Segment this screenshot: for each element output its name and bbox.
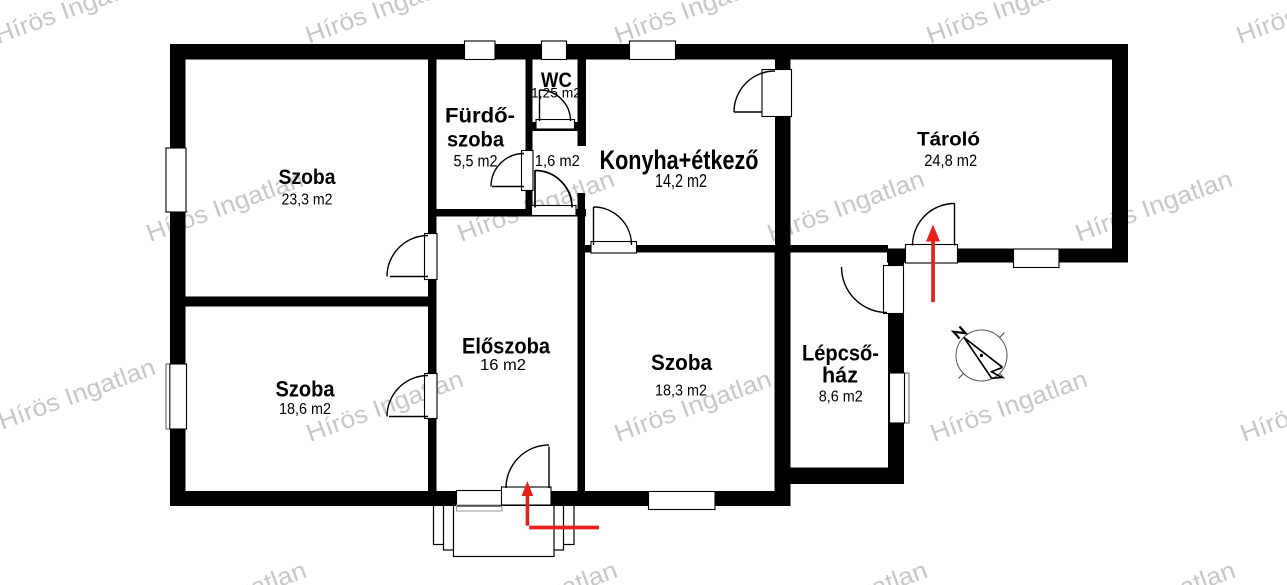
svg-text:1,6 m2: 1,6 m2 — [535, 153, 580, 170]
svg-text:23,3 m2: 23,3 m2 — [282, 192, 333, 209]
svg-text:14,2 m2: 14,2 m2 — [655, 171, 707, 191]
svg-text:Szoba: Szoba — [276, 377, 336, 402]
svg-text:8,6 m2: 8,6 m2 — [819, 389, 863, 406]
svg-text:5,5 m2: 5,5 m2 — [454, 152, 498, 171]
svg-text:16 m2: 16 m2 — [480, 357, 526, 374]
svg-text:Tároló: Tároló — [917, 129, 980, 151]
svg-text:ház: ház — [822, 363, 858, 388]
svg-text:24,8 m2: 24,8 m2 — [924, 151, 977, 170]
svg-text:1,25 m2: 1,25 m2 — [531, 86, 581, 101]
svg-text:Előszoba: Előszoba — [462, 334, 551, 359]
svg-text:18,6 m2: 18,6 m2 — [279, 401, 331, 418]
svg-text:18,3 m2: 18,3 m2 — [655, 383, 707, 400]
svg-text:Szoba: Szoba — [279, 166, 336, 189]
svg-text:Fürdő-: Fürdő- — [445, 105, 515, 128]
svg-text:Szoba: Szoba — [651, 350, 713, 375]
svg-text:szoba: szoba — [447, 129, 504, 152]
